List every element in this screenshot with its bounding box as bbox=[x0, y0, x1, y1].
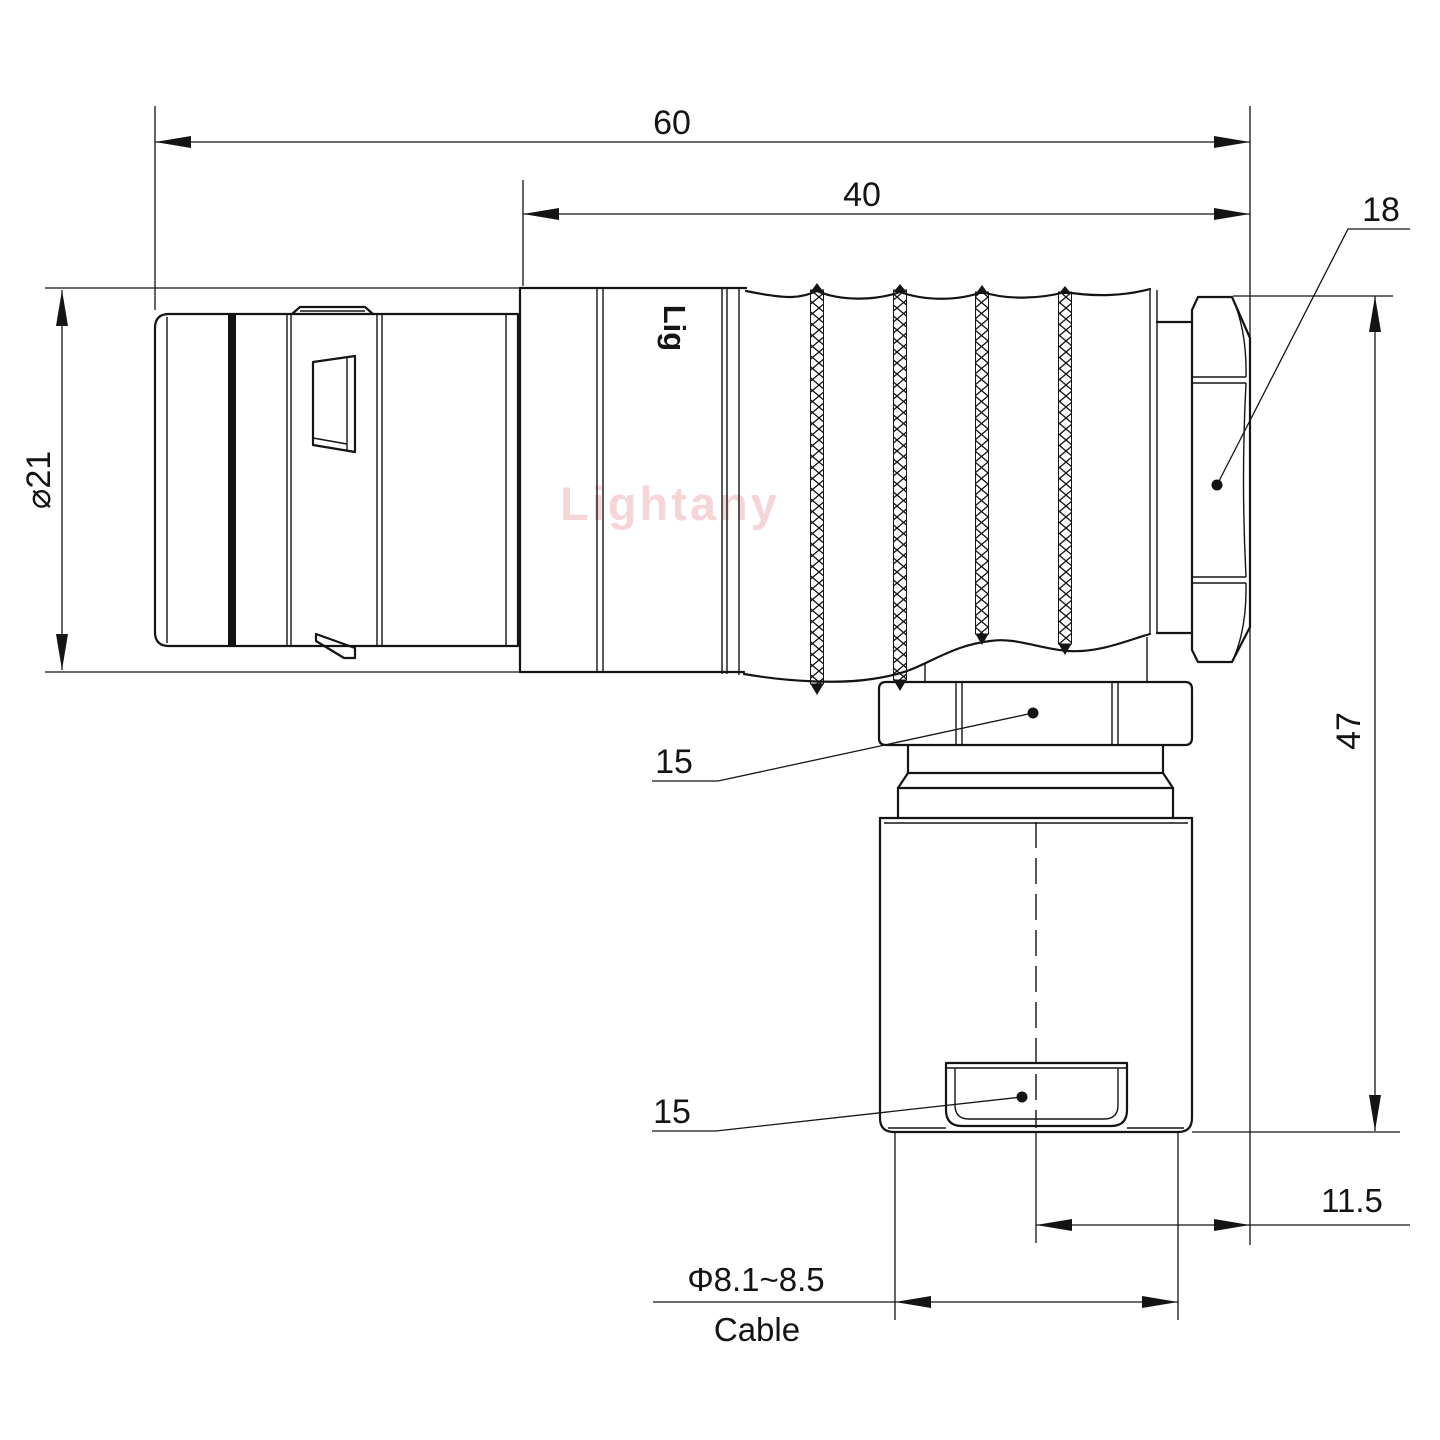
dim-overall-length: 60 bbox=[653, 104, 691, 142]
dim-cable-diameter: Φ8.1~8.5 bbox=[687, 1261, 824, 1298]
shell-black-band bbox=[228, 314, 236, 646]
leader-dot-backnut bbox=[1212, 480, 1223, 491]
leader-dot-clamp bbox=[1017, 1092, 1028, 1103]
dim-shell-diameter: ⌀21 bbox=[20, 451, 58, 509]
dim-backnut-size: 18 bbox=[1362, 191, 1400, 229]
dim-rear-length: 40 bbox=[843, 176, 881, 214]
dim-exit-offset: 11.5 bbox=[1321, 1182, 1383, 1219]
cable-label: Cable bbox=[714, 1311, 800, 1348]
technical-drawing: Lightany bbox=[0, 0, 1440, 1440]
brand-mark-text: Lig bbox=[657, 305, 692, 352]
dim-clamp-hex: 15 bbox=[653, 1093, 691, 1131]
dim-overall-height: 47 bbox=[1330, 712, 1368, 750]
dim-coupling-hex: 15 bbox=[655, 743, 693, 781]
watermark-text: Lightany bbox=[560, 477, 780, 530]
leader-dot-coupling bbox=[1028, 708, 1039, 719]
